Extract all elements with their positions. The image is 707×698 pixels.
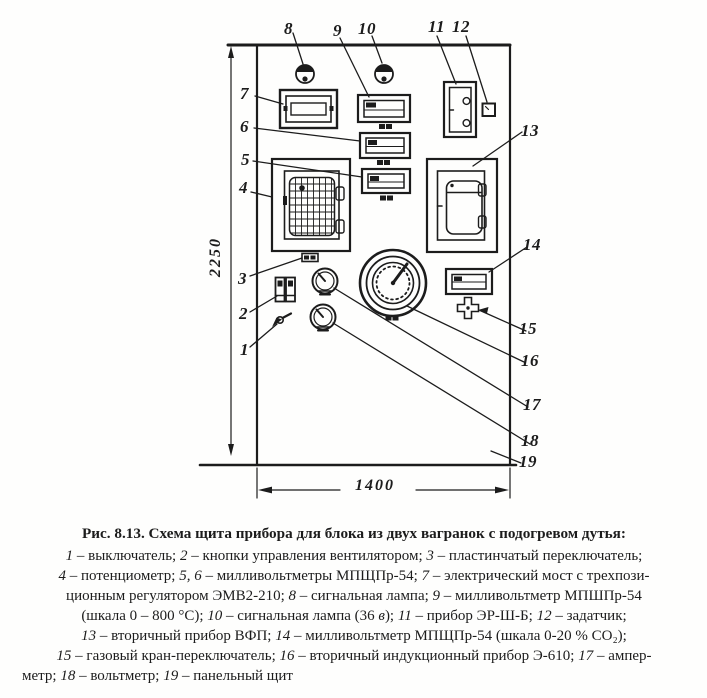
callout-19: 19 [519,453,537,470]
callout-12: 12 [452,18,470,35]
device-11 [444,82,476,137]
secondary-device-13 [427,159,497,252]
millivoltmeter-5 [362,169,410,201]
caption-lines: 1 – выключатель; 2 – кнопки управления в… [16,546,692,686]
figure-caption: Рис. 8.13. Схема щита прибора для блока … [16,524,692,686]
electric-bridge-7 [280,90,337,128]
callout-2: 2 [239,305,248,322]
callout-11: 11 [428,18,445,35]
callout-6: 6 [240,118,249,135]
dimension-width-label: 1400 [355,477,395,495]
caption-line: ционным регулятором ЭМВ2-210; 8 – сигнал… [16,586,692,606]
millivoltmeter-9 [358,95,410,129]
callout-10: 10 [358,20,376,37]
voltmeter-18 [311,305,336,331]
ammeter-17 [313,269,338,295]
dimension-height-label: 2250 [207,237,225,277]
callout-4: 4 [239,179,248,196]
figure-8-13: 1 2 3 4 5 6 7 8 9 10 11 12 13 14 15 16 1… [0,0,707,698]
callout-5: 5 [241,151,250,168]
potentiometer-4 [272,159,350,251]
gas-valve-15 [458,298,479,319]
callout-9: 9 [333,22,342,39]
signal-lamp-10 [375,65,393,83]
caption-title: Рис. 8.13. Схема щита прибора для блока … [16,524,692,544]
callout-8: 8 [284,20,293,37]
callout-7: 7 [240,85,249,102]
callout-13: 13 [521,122,539,139]
leader-lines [250,33,530,463]
caption-line: 4 – потенциометр; 5, 6 – милливольтметры… [16,566,692,586]
callout-18: 18 [521,432,539,449]
caption-line: 13 – вторичный прибор ВФП; 14 – милливол… [16,626,692,646]
dimension-height-line [228,46,234,456]
callout-3: 3 [238,270,247,287]
callout-14: 14 [523,236,541,253]
fan-buttons-2 [276,278,296,302]
setter-12 [483,104,496,117]
caption-line: метр; 18 – вольтметр; 19 – панельный щит [16,666,692,686]
signal-lamp-8 [296,65,314,83]
millivoltmeter-6 [360,133,410,165]
millivoltmeter-14 [446,269,492,294]
callout-17: 17 [523,396,541,413]
caption-line: (шкала 0 – 800 °С); 10 – сигнальная ламп… [16,606,692,626]
caption-line: 1 – выключатель; 2 – кнопки управления в… [16,546,692,566]
caption-line: 15 – газовый кран-переключатель; 16 – вт… [16,646,692,666]
plate-switch-3 [302,254,318,262]
callout-16: 16 [521,352,539,369]
schematic-drawing [0,0,707,520]
callout-1: 1 [240,341,249,358]
callout-15: 15 [519,320,537,337]
